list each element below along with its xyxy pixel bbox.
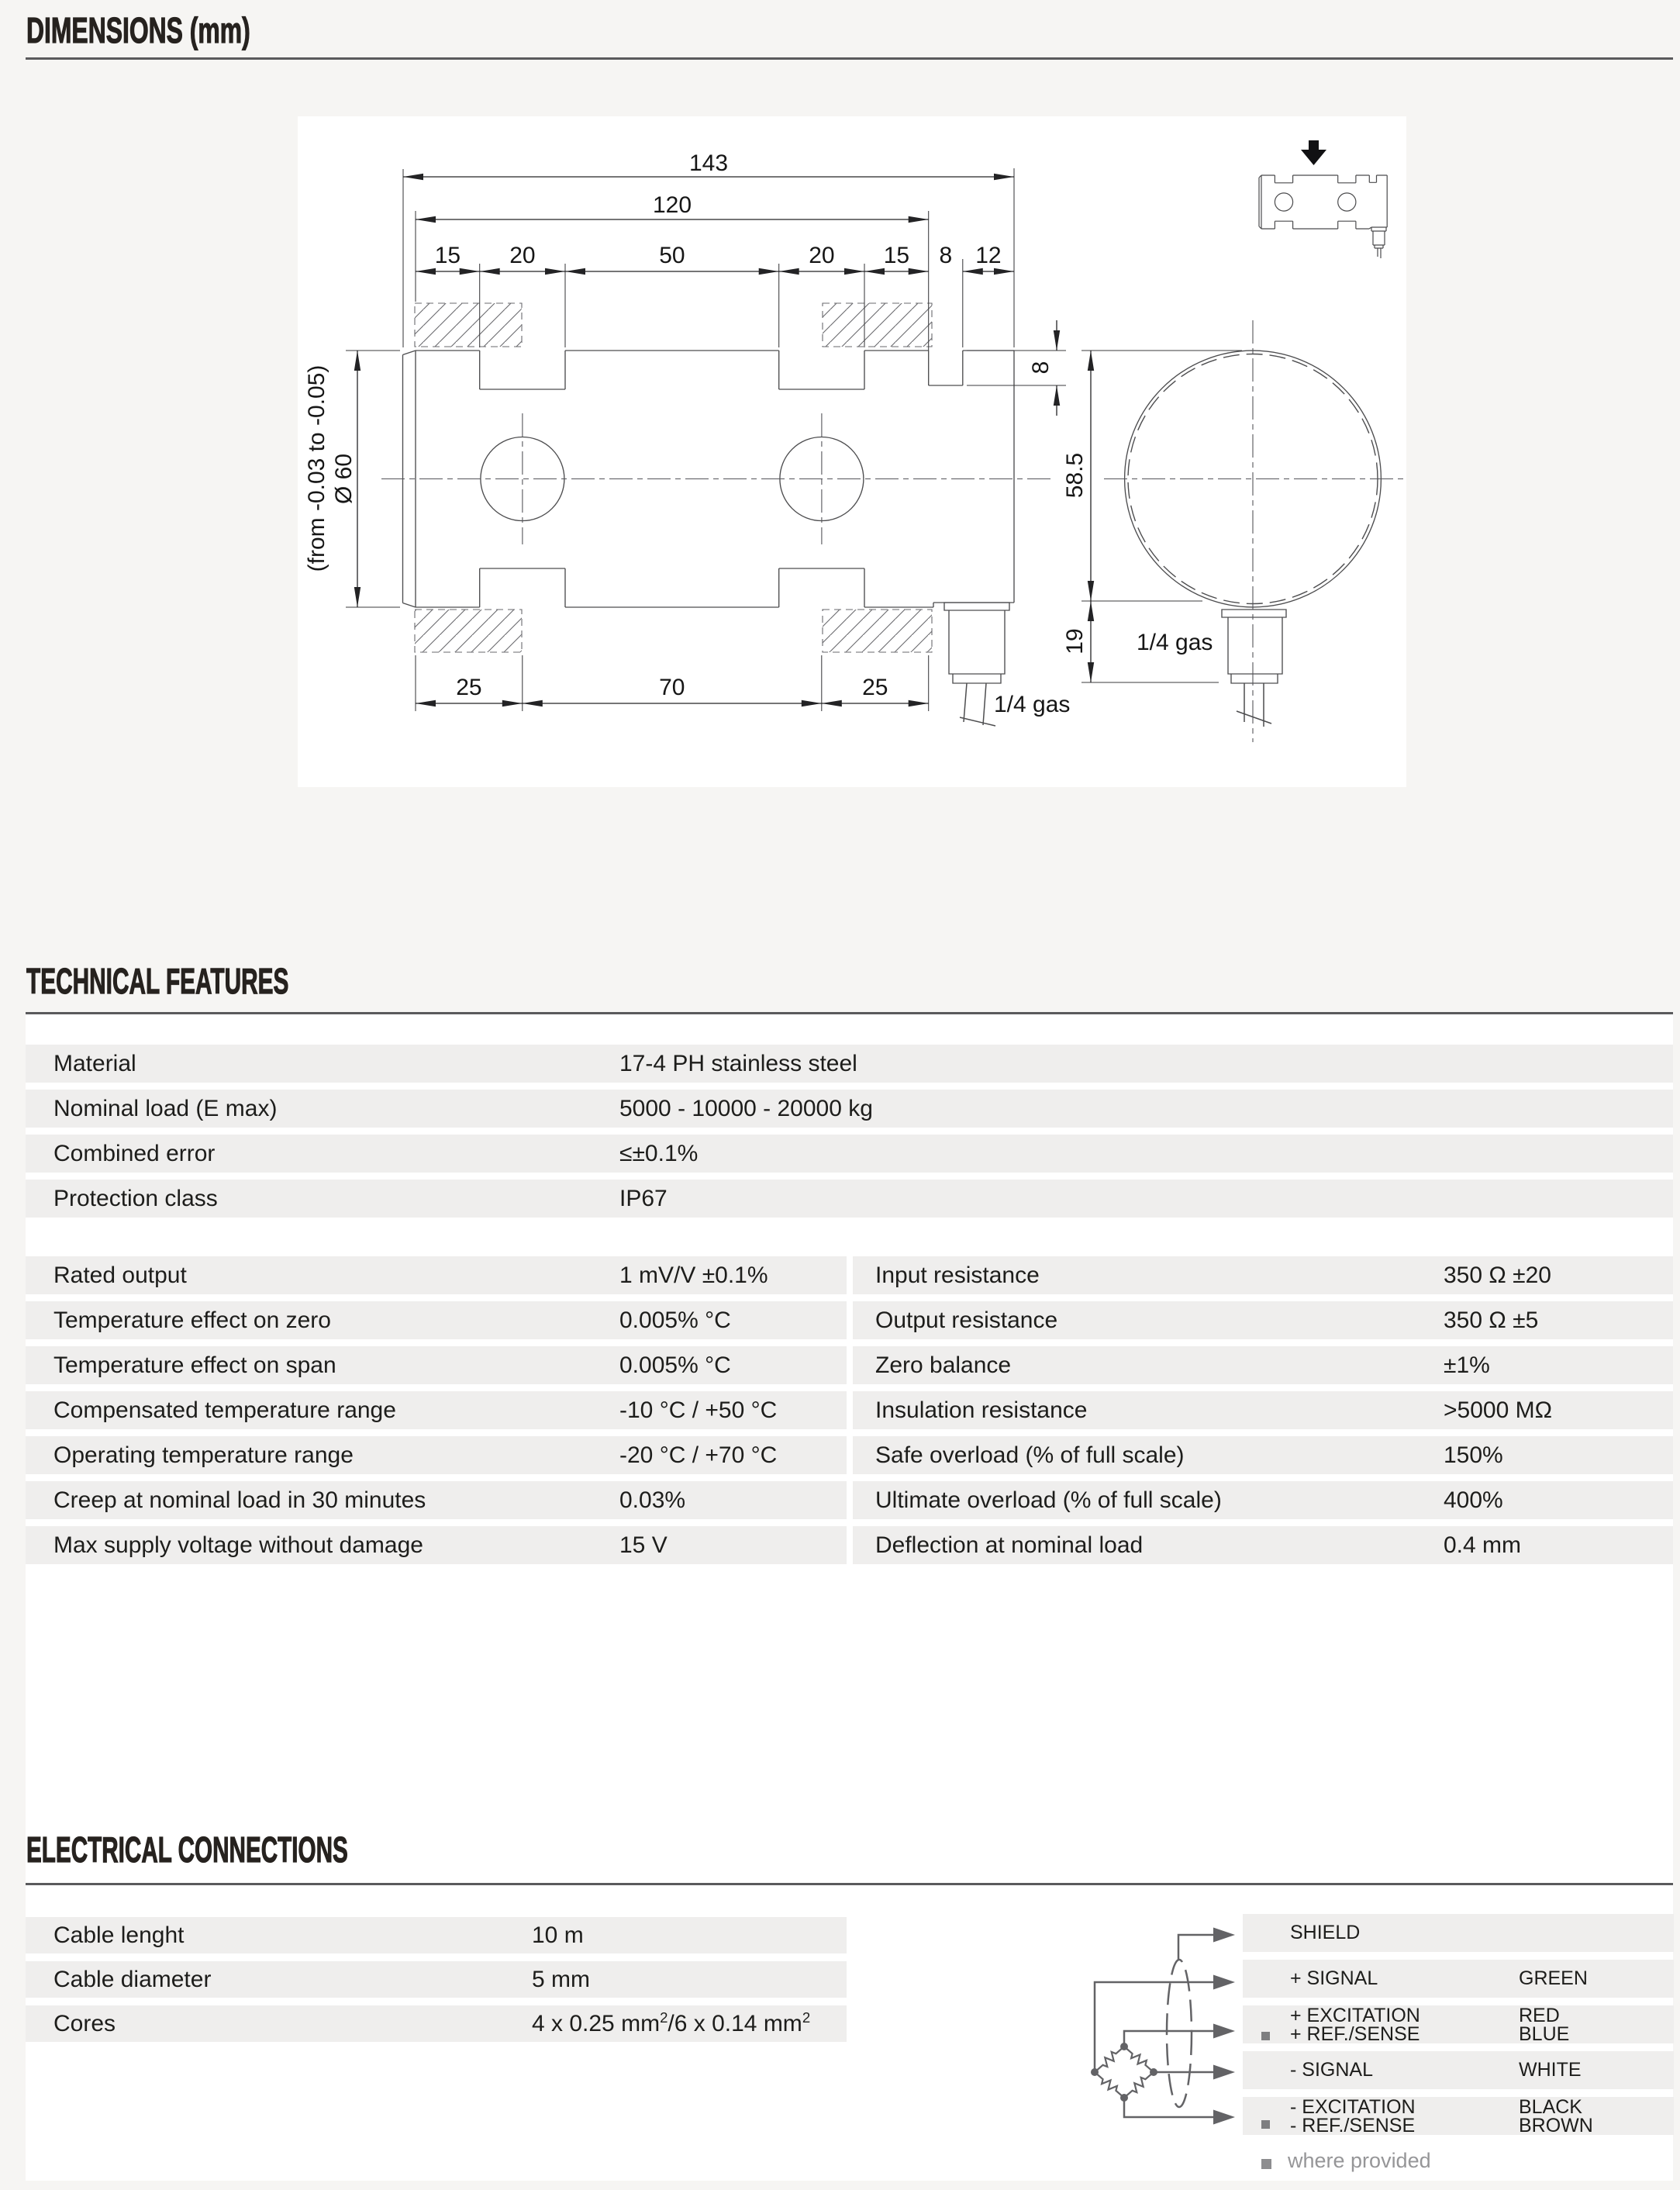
svg-text:15: 15 [435, 243, 461, 268]
svg-text:143: 143 [689, 150, 728, 176]
svg-text:12: 12 [975, 243, 1001, 268]
svg-text:19: 19 [1062, 628, 1088, 654]
svg-text:50: 50 [659, 243, 685, 268]
svg-text:70: 70 [659, 675, 685, 700]
svg-text:(from -0.03 to -0.05): (from -0.03 to -0.05) [304, 365, 329, 572]
svg-text:25: 25 [456, 675, 481, 700]
svg-text:25: 25 [862, 675, 888, 700]
svg-text:58.5: 58.5 [1062, 453, 1088, 498]
svg-text:8: 8 [1028, 361, 1054, 375]
svg-text:120: 120 [653, 192, 692, 218]
svg-text:Ø 60: Ø 60 [331, 454, 357, 504]
svg-text:20: 20 [509, 243, 535, 268]
svg-text:8: 8 [939, 243, 952, 268]
svg-text:15: 15 [884, 243, 909, 268]
svg-text:1/4 gas: 1/4 gas [1137, 630, 1213, 655]
svg-text:20: 20 [809, 243, 834, 268]
svg-text:1/4 gas: 1/4 gas [994, 692, 1070, 717]
